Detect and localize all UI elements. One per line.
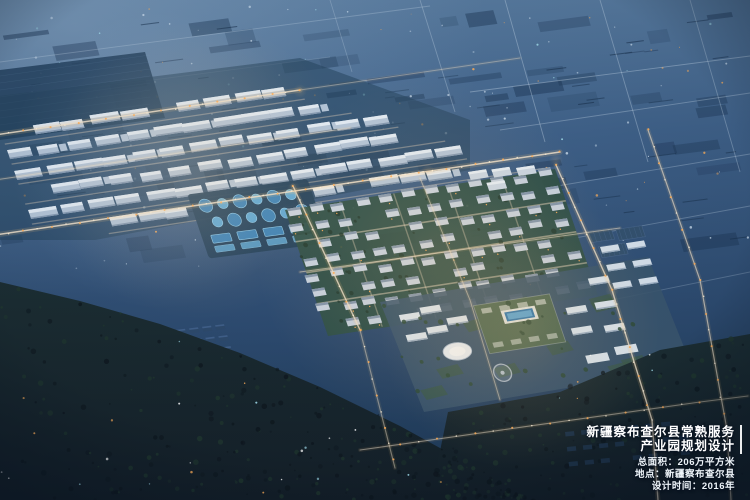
stat-location: 地点：新疆察布查尔县 [586,469,735,481]
project-title: 新疆察布查尔县常熟服务 产业园规划设计 [586,425,742,454]
aerial-city-render: 新疆察布查尔县常熟服务 产业园规划设计 总面积：206万平方米 地点：新疆察布查… [0,0,750,500]
project-stats: 总面积：206万平方米 地点：新疆察布查尔县 设计时间：2016年 [586,457,742,493]
stat-total-area: 总面积：206万平方米 [586,457,735,469]
stat-design-date: 设计时间：2016年 [586,481,735,493]
project-caption: 新疆察布查尔县常熟服务 产业园规划设计 总面积：206万平方米 地点：新疆察布查… [586,425,742,493]
project-title-line2: 产业园规划设计 [586,439,735,453]
project-title-line1: 新疆察布查尔县常熟服务 [586,425,735,439]
